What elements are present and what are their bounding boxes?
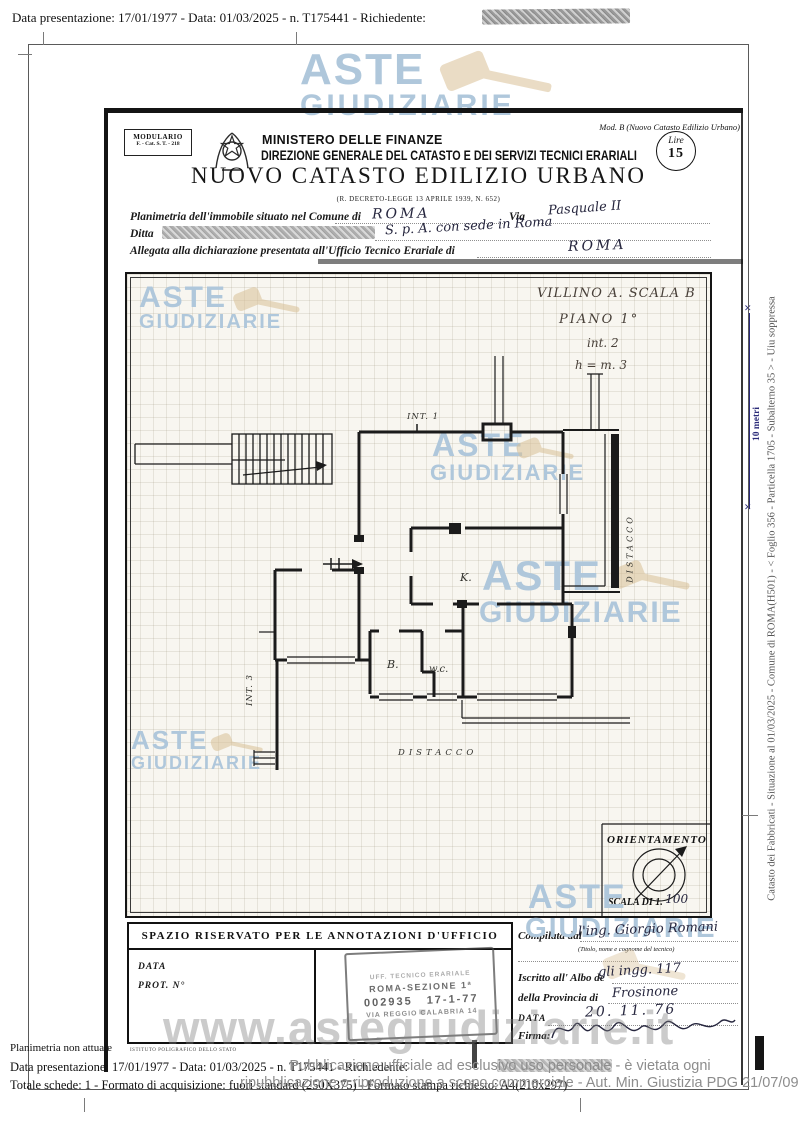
ditta-label: Ditta [130, 228, 154, 240]
scala-handwritten-value: 100 [665, 892, 688, 906]
label-distacco-right: DISTACCO [626, 509, 635, 589]
scanned-cadastral-document-page: Data presentazione: 17/01/1977 - Data: 0… [0, 0, 800, 1132]
modulario-line1: MODULARIO [125, 133, 191, 141]
scale-bar-end-mark: ✕ [744, 503, 752, 513]
aste-watermark-text: ASTE [528, 882, 627, 913]
scan-right-rule [741, 110, 743, 1085]
label-int3: INT. 3 [245, 660, 255, 720]
scan-left-rule [104, 108, 108, 1072]
office-prot-label: PROT. N° [138, 981, 185, 991]
lire-label: Lire [657, 136, 695, 146]
scale-bar-end-mark: ✕ [744, 304, 752, 314]
document-title: NUOVO CATASTO EDILIZIO URBANO [125, 163, 712, 189]
frame-tick [84, 1098, 85, 1112]
plan-note-altezza: h = m. 3 [575, 358, 627, 372]
label-int1: INT. 1 [407, 412, 439, 422]
modulario-box: MODULARIO F. - Cat. S. T. - 218 [124, 129, 192, 156]
provincia-value-handwritten: Frosinone [612, 984, 679, 1001]
scale-bar [748, 313, 750, 509]
label-kitchen: K. [460, 571, 472, 584]
top-meta-line: Data presentazione: 17/01/1977 - Data: 0… [12, 10, 426, 26]
frame-tick [580, 1098, 581, 1112]
office-box-title: SPAZIO RISERVATO PER LE ANNOTAZIONI D'UF… [129, 924, 511, 950]
ministry-title: MINISTERO DELLE FINANZE [262, 133, 443, 147]
direction-title: DIREZIONE GENERALE DEL CATASTO E DEI SER… [261, 148, 637, 163]
label-bath: B. [387, 658, 399, 671]
plan-note-villino: VILLINO A. SCALA B [537, 286, 696, 301]
legal-overlay-line1: Pubblicazione ufficiale ad esclusivo uso… [240, 1058, 760, 1074]
redacted-requester-blob [482, 8, 630, 24]
modulario-line2: F. - Cat. S. T. - 218 [125, 141, 191, 148]
plan-note-piano: PIANO 1° [559, 312, 639, 327]
ufficio-value-handwritten: ROMA [568, 237, 627, 255]
orientamento-title: ORIENTAMENTO [607, 834, 707, 846]
gavel-icon [437, 50, 557, 106]
albo-label: Iscritto all' Albo de [518, 972, 605, 984]
comune-label: Planimetria dell'immobile situato nel Co… [130, 211, 361, 223]
scan-band-artifact [318, 259, 743, 264]
plan-note-interno: int. 2 [587, 336, 619, 350]
plan-not-current-note: Planimetria non attuale [10, 1042, 112, 1054]
frame-tick [296, 32, 297, 45]
stamp-section-line: ROMA-SEZIONE 1ª [369, 979, 473, 993]
redacted-ditta-blob [162, 226, 375, 239]
office-data-label: DATA [138, 962, 166, 972]
frame-tick [742, 815, 758, 816]
aste-watermark-text: ASTE [300, 50, 425, 90]
comune-value-handwritten: ROMA [372, 205, 431, 222]
legal-overlay-line2: ripubblicazione o riproduzione a scopo c… [240, 1075, 760, 1091]
floorplan-sheet: ASTE GIUDIZIARIE ASTE GIUDIZIARIE ASTE G… [125, 272, 712, 918]
label-distacco-bottom: DISTACCO [398, 748, 477, 758]
frame-tick [18, 54, 32, 55]
side-cadastral-note: Catasto dei Fabbricati - Situazione al 0… [767, 149, 778, 1049]
url-watermark: www.astegiudiziarie.it [163, 1000, 674, 1055]
document-subtitle: (R. DECRETO-LEGGE 13 APRILE 1939, N. 652… [125, 195, 712, 203]
scan-top-rule [105, 108, 743, 113]
frame-tick [43, 32, 44, 45]
mod-b-label: Mod. B (Nuovo Catasto Edilizio Urbano) [470, 122, 740, 132]
lire-value: 15 [657, 146, 695, 161]
ufficio-label: Allegata alla dichiarazione presentata a… [130, 245, 455, 257]
scale-bar-label: 10 metri [752, 394, 762, 454]
label-wc: w.c. [429, 664, 448, 675]
